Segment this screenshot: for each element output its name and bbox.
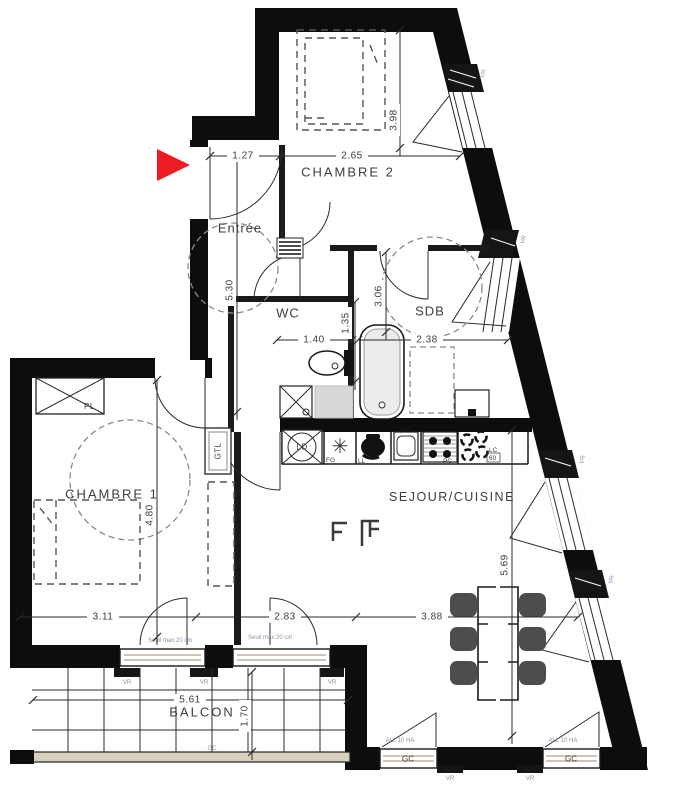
- fridge: ✳ FG: [326, 436, 348, 464]
- chambre2-bed: [297, 30, 385, 130]
- oven: LL: [358, 434, 385, 465]
- allege-label-2: ALL 10 HA: [549, 738, 578, 744]
- wall-entry-jamb: [190, 140, 208, 147]
- dim-sejour-d: 5.69: [500, 554, 511, 575]
- placard-label: PL: [84, 402, 95, 411]
- vanity-dashed: [410, 347, 454, 413]
- gtl-label: GTL: [214, 442, 223, 459]
- dim-chambre1-d: 4.80: [145, 504, 156, 525]
- seuil-label-2: Seuil max 20 cm: [248, 635, 292, 641]
- dim-sdb-d: 3.06: [374, 285, 385, 306]
- sejour-fixture: [455, 390, 489, 417]
- wall-chambre2-south-b: [428, 245, 490, 251]
- dim-sejour-w: 3.88: [421, 612, 442, 623]
- bathtub-drain: [379, 402, 385, 408]
- vr-small-4: VR: [200, 680, 209, 686]
- turning-circle-chambre1: [70, 420, 190, 540]
- vr-label-2: VR: [520, 234, 528, 244]
- wall-left-outer: [10, 358, 32, 668]
- placard: PL: [36, 378, 104, 414]
- dim-chambre1-w: 3.11: [93, 612, 114, 623]
- wall-left-mid: [190, 219, 208, 360]
- sejour-bay: [233, 649, 330, 666]
- shutter-box-4: [568, 570, 609, 598]
- dim-chambre2-w: 2.65: [341, 151, 362, 162]
- label-chambre2: CHAMBRE 2: [301, 165, 395, 180]
- sejour-furniture: [333, 521, 379, 546]
- lc-size-label: 60: [489, 455, 497, 462]
- allege-label-1: ALL 10 HA: [386, 738, 415, 744]
- vr-label-3: VR: [579, 454, 587, 464]
- vr-small-2: VR: [526, 776, 535, 782]
- gc-label-balcony: GC: [208, 746, 218, 752]
- snowflake-icon: ✳: [332, 436, 349, 458]
- label-chambre1: CHAMBRE 1: [65, 487, 159, 502]
- chambre1-bay: [120, 649, 205, 666]
- floor-plan: VR VR VR VR GC GC ALL: [0, 0, 694, 800]
- label-entree: Entrée: [218, 221, 262, 236]
- wall-wc-west: [228, 302, 234, 432]
- vr-small-5: VR: [328, 680, 337, 686]
- vr-label-1: VR: [480, 68, 488, 78]
- fg-label: FG: [326, 457, 335, 464]
- chairs: [450, 593, 546, 685]
- chambre1-bed: [34, 500, 140, 584]
- shutter-box-2: [478, 230, 519, 258]
- wall-chambre1-top-b: [205, 358, 212, 378]
- wall-chambre1-sejour: [234, 432, 241, 645]
- kitchen: LD ✳ FG LL PC: [282, 428, 528, 466]
- gc-label-1: GC: [402, 755, 414, 764]
- burners: [462, 432, 488, 461]
- label-wc: WC: [276, 306, 300, 321]
- wall-top: [255, 8, 440, 32]
- pc-label: PC: [443, 458, 452, 465]
- vr-small-3: VR: [123, 680, 132, 686]
- wall-chambre1-top-a: [25, 358, 155, 378]
- label-sejour: SEJOUR/CUISINE: [389, 490, 515, 504]
- shower-tray: [315, 386, 353, 418]
- shutter-box-1: [443, 64, 484, 92]
- wall-entry-step: [192, 116, 279, 140]
- label-sdb: SDB: [415, 304, 445, 319]
- kitchen-sink: [394, 428, 418, 461]
- chambre1-wardrobe: [208, 482, 234, 586]
- ll-label: LL: [358, 458, 366, 465]
- gtl: GTL: [205, 428, 231, 474]
- vr-label-4: VR: [608, 574, 616, 584]
- dim-wc-w: 1.40: [303, 335, 324, 346]
- washing-machine: LD: [282, 430, 322, 464]
- lc-unit: LC 60: [487, 447, 500, 462]
- label-balcon: BALCON: [169, 705, 234, 720]
- wall-bottom-a: [10, 645, 120, 668]
- dim-entry: 1.27: [232, 151, 253, 162]
- wc-fixtures: [280, 350, 354, 418]
- radiator: [277, 238, 303, 258]
- shutter-box-3: [538, 450, 579, 478]
- dining-set: [450, 587, 546, 700]
- balcony-railing: [20, 752, 350, 762]
- dim-chambre2-d: 3.98: [389, 109, 400, 130]
- balcony-railing-cap: [10, 750, 34, 764]
- entrance-arrow: [157, 149, 190, 181]
- dim-hall: 5.30: [225, 279, 236, 300]
- vr-small-1: VR: [446, 776, 455, 782]
- toilet-bowl: [309, 351, 345, 375]
- turning-circle-sdb: [382, 237, 482, 337]
- wall-bottom-b: [205, 645, 233, 668]
- dim-wc-d: 1.35: [341, 312, 352, 333]
- sdb-door: [380, 251, 428, 299]
- ld-label: LD: [296, 443, 307, 452]
- dim-sdb-w: 2.38: [416, 335, 437, 346]
- wall-wc-north: [228, 296, 354, 302]
- dim-balcon-d: 1.70: [240, 705, 251, 726]
- wall-chambre2-south-a: [330, 245, 377, 251]
- gc-label-2: GC: [565, 755, 577, 764]
- hob: PC: [423, 432, 457, 465]
- chambre1-door: [155, 378, 205, 428]
- dim-sejour-bay: 2.83: [274, 612, 295, 623]
